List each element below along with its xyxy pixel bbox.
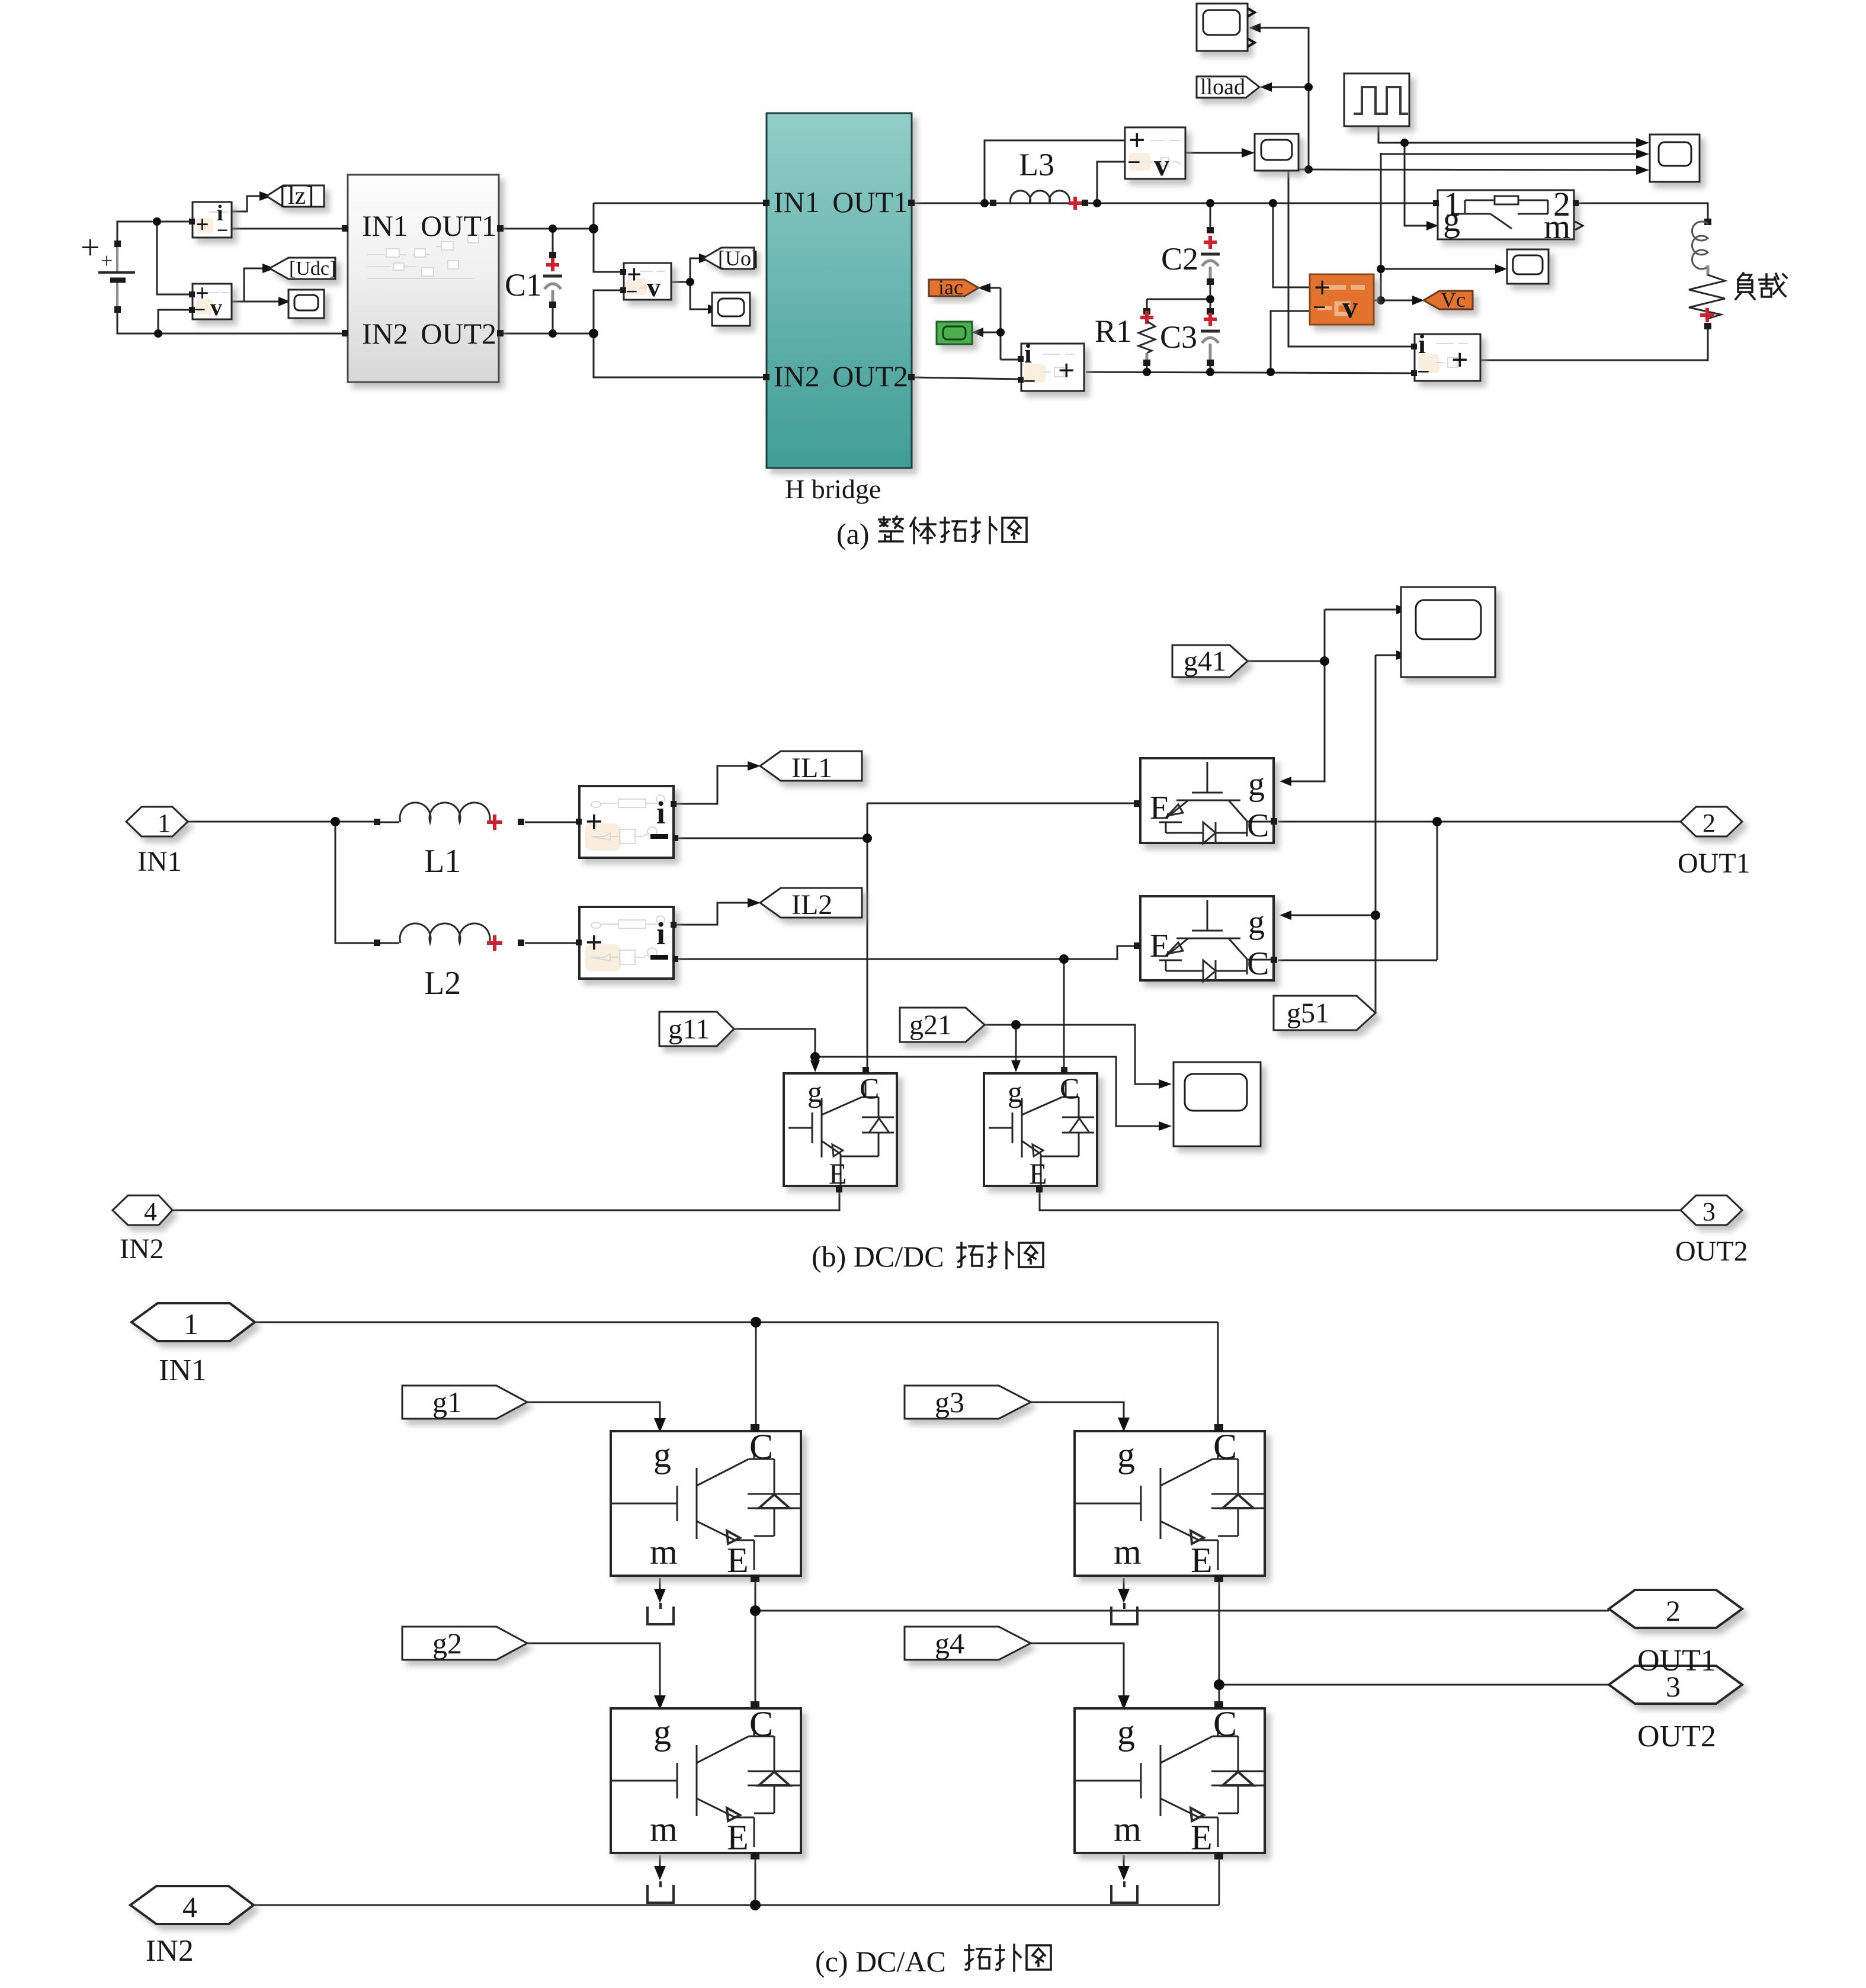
svg-text:[Uo]: [Uo] [718, 246, 758, 270]
svg-text:OUT2: OUT2 [1675, 1236, 1748, 1267]
svg-text:+: + [585, 926, 603, 960]
svg-text:g51: g51 [1287, 998, 1329, 1029]
svg-text:g41: g41 [1184, 646, 1226, 677]
svg-text:IN2: IN2 [120, 1233, 164, 1265]
svg-text:−: − [1417, 360, 1430, 384]
svg-text:−: − [1023, 369, 1036, 394]
svg-text:−: − [194, 299, 206, 321]
svg-text:L3: L3 [1019, 147, 1054, 182]
svg-text:g21: g21 [909, 1009, 952, 1041]
svg-text:(c) DC/AC: (c) DC/AC [815, 1945, 946, 1978]
svg-text:g: g [1008, 1075, 1022, 1108]
svg-text:L1: L1 [424, 843, 461, 880]
svg-text:H bridge: H bridge [785, 474, 881, 504]
svg-text:lload: lload [1200, 75, 1245, 100]
svg-text:C3: C3 [1160, 319, 1197, 355]
svg-text:−: − [1127, 149, 1141, 175]
svg-text:m: m [650, 1532, 678, 1572]
svg-text:+: + [81, 228, 100, 267]
svg-text:E: E [1029, 1157, 1047, 1190]
svg-text:C: C [860, 1072, 879, 1105]
svg-text:1: 1 [158, 809, 171, 838]
svg-text:[Udc]: [Udc] [289, 258, 336, 280]
svg-text:E: E [1150, 790, 1170, 826]
svg-text:R1: R1 [1095, 313, 1132, 349]
svg-text:g4: g4 [935, 1627, 964, 1660]
svg-text:+: + [1058, 354, 1075, 387]
svg-text:OUT2: OUT2 [421, 317, 496, 350]
svg-text:m: m [1544, 207, 1570, 246]
svg-text:+: + [1451, 343, 1469, 376]
svg-text:v: v [1154, 149, 1169, 182]
svg-text:i: i [656, 916, 665, 951]
svg-text:E: E [1150, 928, 1170, 964]
svg-text:−: − [1313, 294, 1326, 320]
svg-text:IN2: IN2 [362, 317, 408, 350]
svg-text:1: 1 [184, 1307, 198, 1341]
svg-text:Vc: Vc [1441, 288, 1466, 312]
svg-text:C: C [1060, 1072, 1079, 1105]
svg-text:E: E [727, 1541, 749, 1580]
svg-text:OUT1: OUT1 [832, 185, 908, 219]
svg-text:−: − [626, 280, 638, 303]
svg-text:IN1: IN1 [159, 1354, 207, 1387]
svg-text:4: 4 [182, 1890, 197, 1923]
svg-text:+: + [101, 249, 113, 272]
svg-text:2: 2 [1666, 1594, 1681, 1627]
svg-text:g: g [1248, 904, 1265, 941]
svg-text:g: g [653, 1435, 671, 1474]
svg-text:L2: L2 [424, 965, 461, 1002]
svg-text:+: + [195, 211, 209, 238]
svg-text:(a): (a) [836, 517, 870, 550]
svg-text:C: C [749, 1427, 773, 1466]
svg-text:C: C [1247, 807, 1269, 844]
svg-text:IL2: IL2 [791, 889, 832, 921]
svg-text:i: i [656, 795, 665, 831]
svg-text:IN1: IN1 [137, 846, 182, 877]
svg-text:v: v [1342, 291, 1358, 325]
svg-text:g1: g1 [432, 1386, 462, 1419]
svg-text:4: 4 [144, 1197, 157, 1226]
svg-text:g: g [807, 1075, 822, 1108]
svg-text:(b) DC/DC: (b) DC/DC [812, 1240, 944, 1273]
svg-text:IL1: IL1 [791, 752, 832, 784]
svg-text:g3: g3 [935, 1386, 964, 1419]
svg-text:+: + [585, 805, 603, 839]
svg-text:−: − [217, 220, 228, 242]
svg-text:IN2: IN2 [774, 360, 820, 393]
svg-text:3: 3 [1703, 1197, 1716, 1226]
svg-text:[lz]: [lz] [280, 182, 314, 210]
svg-text:v: v [647, 272, 661, 302]
svg-text:E: E [829, 1157, 847, 1190]
svg-text:3: 3 [1666, 1670, 1681, 1703]
svg-text:g: g [1443, 200, 1460, 239]
svg-text:g2: g2 [432, 1627, 462, 1660]
svg-text:OUT1: OUT1 [421, 209, 496, 242]
svg-text:IN1: IN1 [774, 185, 820, 219]
svg-text:g11: g11 [668, 1014, 710, 1045]
svg-text:i: i [1024, 338, 1032, 368]
svg-text:2: 2 [1703, 809, 1716, 838]
svg-text:OUT2: OUT2 [832, 360, 908, 393]
svg-text:OUT2: OUT2 [1637, 1720, 1716, 1753]
svg-text:IN2: IN2 [146, 1934, 194, 1968]
svg-text:g: g [1248, 766, 1265, 803]
svg-text:C2: C2 [1161, 241, 1198, 277]
svg-text:IN1: IN1 [362, 209, 408, 242]
svg-text:i: i [1418, 329, 1426, 359]
svg-text:OUT1: OUT1 [1678, 848, 1750, 879]
svg-text:iac: iac [938, 275, 963, 299]
svg-text:C: C [1247, 945, 1269, 982]
svg-text:v: v [210, 294, 222, 320]
svg-text:C1: C1 [505, 267, 542, 303]
